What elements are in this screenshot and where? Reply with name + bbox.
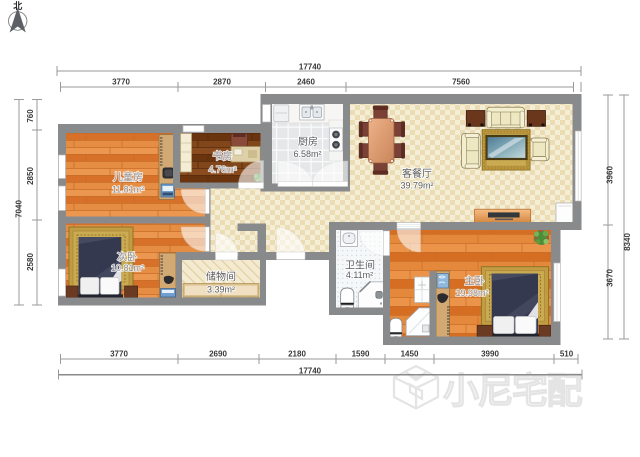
svg-text:17740: 17740 (299, 63, 322, 72)
svg-text:7040: 7040 (14, 200, 23, 218)
svg-text:17740: 17740 (299, 367, 322, 376)
svg-text:3770: 3770 (112, 78, 130, 87)
svg-text:760: 760 (26, 109, 35, 123)
svg-text:2850: 2850 (26, 167, 35, 185)
svg-text:10.81m²: 10.81m² (111, 263, 144, 273)
svg-text:4.11m²: 4.11m² (346, 270, 373, 280)
svg-text:510: 510 (560, 350, 574, 359)
svg-text:39.79m²: 39.79m² (400, 181, 433, 191)
svg-text:客餐厅: 客餐厅 (402, 167, 432, 180)
svg-text:3670: 3670 (606, 269, 615, 287)
svg-text:1590: 1590 (352, 350, 370, 359)
svg-text:3.39m²: 3.39m² (207, 285, 235, 295)
svg-text:11.81m²: 11.81m² (112, 185, 144, 195)
svg-text:7560: 7560 (452, 78, 470, 87)
svg-text:北: 北 (13, 0, 22, 11)
svg-text:储物间: 储物间 (206, 270, 236, 283)
svg-text:19.98m²: 19.98m² (455, 288, 488, 298)
svg-text:3990: 3990 (481, 350, 499, 359)
svg-text:2460: 2460 (297, 78, 315, 87)
svg-text:主卧: 主卧 (465, 275, 485, 288)
svg-text:小尼宅配: 小尼宅配 (443, 370, 583, 411)
svg-text:6.58m²: 6.58m² (293, 149, 321, 159)
svg-text:3770: 3770 (110, 350, 128, 359)
svg-text:4.76m²: 4.76m² (208, 165, 236, 175)
svg-text:儿童房: 儿童房 (113, 171, 143, 184)
svg-text:厨房: 厨房 (298, 135, 318, 148)
svg-text:2580: 2580 (26, 253, 35, 271)
svg-text:8340: 8340 (623, 233, 632, 251)
svg-text:次卧: 次卧 (117, 251, 137, 264)
svg-text:书房: 书房 (213, 150, 233, 163)
svg-text:2690: 2690 (209, 350, 227, 359)
svg-text:1450: 1450 (401, 350, 419, 359)
svg-text:2870: 2870 (213, 78, 231, 87)
svg-text:2180: 2180 (288, 350, 306, 359)
svg-text:3960: 3960 (606, 166, 615, 184)
